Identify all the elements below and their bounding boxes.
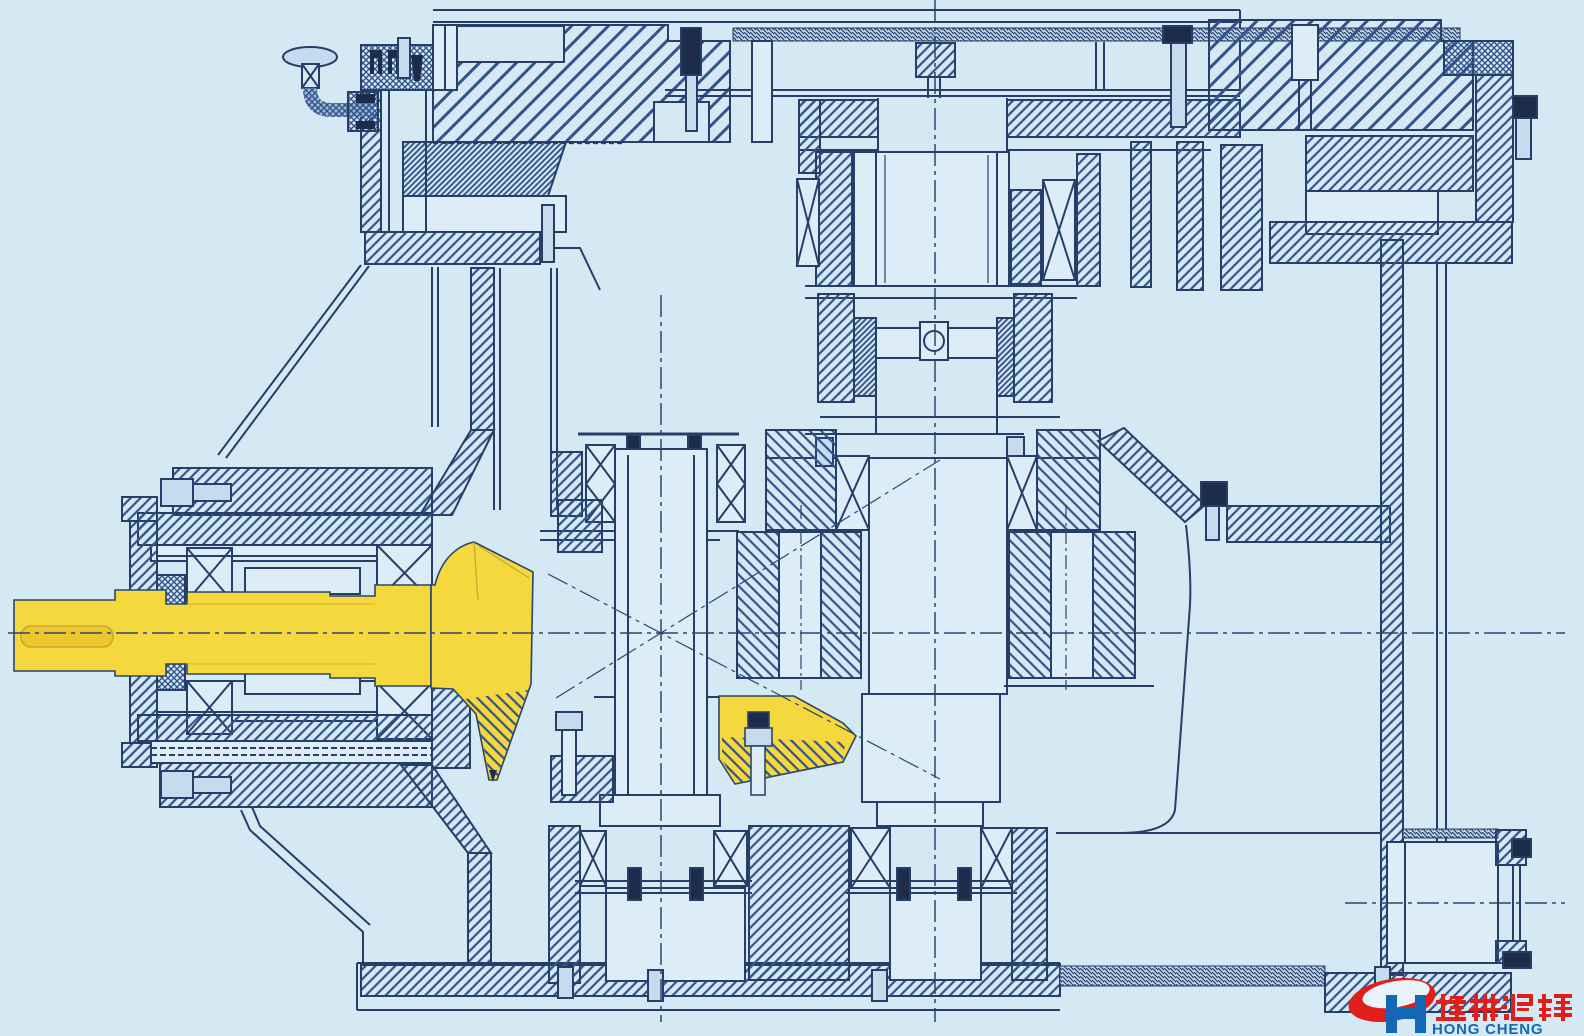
- svg-text:HONG CHENG: HONG CHENG: [1432, 1021, 1543, 1036]
